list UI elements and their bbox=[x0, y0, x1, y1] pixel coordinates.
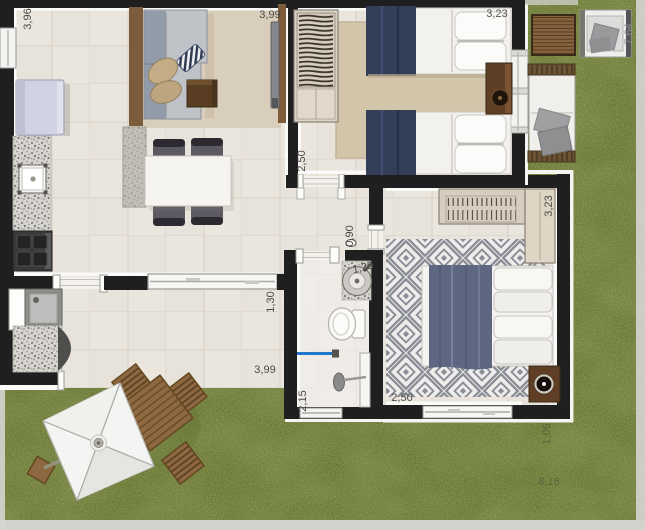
svg-text:2,50: 2,50 bbox=[296, 150, 308, 171]
svg-text:3,99: 3,99 bbox=[259, 9, 280, 21]
svg-text:8,16: 8,16 bbox=[538, 476, 559, 488]
svg-text:2,15: 2,15 bbox=[297, 390, 309, 411]
svg-text:3,23: 3,23 bbox=[486, 8, 507, 20]
svg-text:7,64: 7,64 bbox=[623, 23, 635, 44]
svg-text:2,50: 2,50 bbox=[391, 392, 412, 404]
svg-text:0,90: 0,90 bbox=[344, 225, 356, 246]
svg-text:1,06: 1,06 bbox=[541, 423, 553, 444]
svg-text:3,23: 3,23 bbox=[543, 195, 555, 216]
svg-text:1,30: 1,30 bbox=[265, 291, 277, 312]
svg-text:3,96: 3,96 bbox=[22, 8, 34, 29]
svg-text:3,99: 3,99 bbox=[254, 364, 275, 376]
